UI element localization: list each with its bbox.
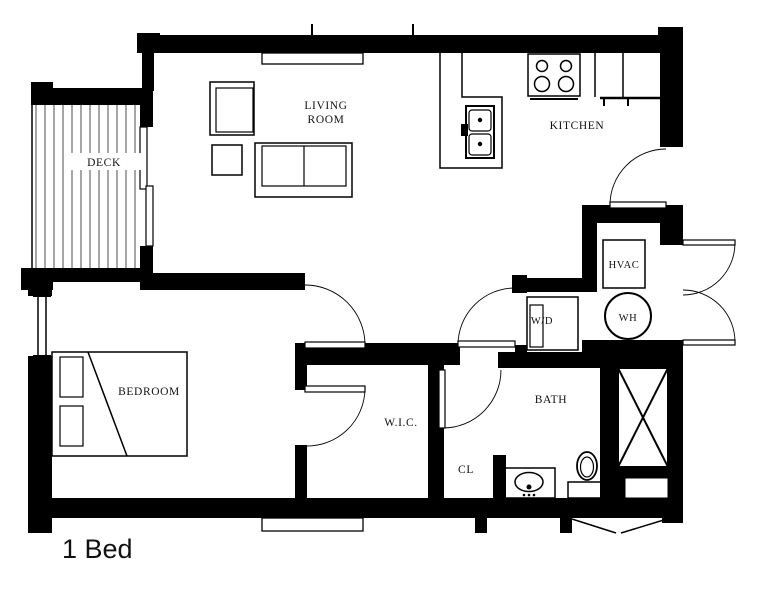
walls — [21, 27, 683, 533]
chase-niche — [625, 478, 668, 498]
window-bedroom-left — [30, 296, 52, 356]
wd-door-leaf — [458, 341, 515, 347]
sliding-door-deck — [139, 127, 154, 246]
floor-plan-page: DECK LIVING ROOM KITCHEN BEDROOM W.I.C. … — [0, 0, 770, 608]
room-label-closet: CL — [458, 464, 474, 476]
chase-x-box — [618, 368, 668, 467]
room-label-bath: BATH — [535, 394, 567, 406]
kitchen-fixtures — [440, 53, 662, 168]
stove — [528, 54, 580, 96]
sink-faucet — [461, 124, 468, 136]
pillow — [60, 357, 83, 397]
side-table — [212, 145, 242, 175]
wd-door-arc — [458, 288, 515, 345]
room-label-kitchen: KITCHEN — [550, 120, 605, 132]
entry-door-mark-left — [572, 519, 616, 533]
wic-door-leaf — [305, 386, 365, 392]
kitchen-sink — [466, 106, 494, 158]
pillow — [60, 406, 83, 446]
room-label-bedroom: BEDROOM — [118, 386, 180, 398]
hvac-door-bottom-arc — [683, 290, 735, 342]
bed-symbol — [52, 352, 187, 456]
floor-plan-drawing: DECK LIVING ROOM KITCHEN BEDROOM W.I.C. … — [0, 0, 770, 608]
bath-door-arc — [443, 370, 501, 428]
label-water-heater: WH — [619, 313, 638, 324]
room-label-living-line2: ROOM — [308, 114, 345, 126]
label-washer-dryer: W/D — [531, 316, 553, 327]
hvac-door-top-leaf — [683, 240, 735, 245]
hvac-door-bottom-leaf — [683, 340, 735, 345]
wall-tick-marks — [312, 24, 413, 35]
window-bottom-wall — [262, 518, 363, 531]
window-living-room — [262, 53, 363, 64]
wic-door-arc — [305, 389, 365, 446]
entry-door-mark-right — [621, 519, 667, 533]
hvac-door-top-arc — [683, 243, 735, 295]
bath-door-leaf — [439, 370, 445, 428]
room-label-wic: W.I.C. — [384, 417, 418, 429]
bedroom-door-arc — [305, 285, 365, 345]
kitchen-door-leaf — [610, 202, 666, 208]
bath-fixtures — [505, 452, 605, 498]
plan-title: 1 Bed — [62, 534, 133, 564]
room-label-living-line1: LIVING — [304, 100, 347, 112]
room-label-deck: DECK — [87, 157, 121, 169]
toilet-tank — [568, 482, 605, 498]
deck-board-hatching — [36, 105, 135, 268]
bedroom-door-leaf — [305, 342, 365, 348]
kitchen-door-arc — [610, 149, 666, 205]
label-hvac: HVAC — [609, 260, 640, 271]
